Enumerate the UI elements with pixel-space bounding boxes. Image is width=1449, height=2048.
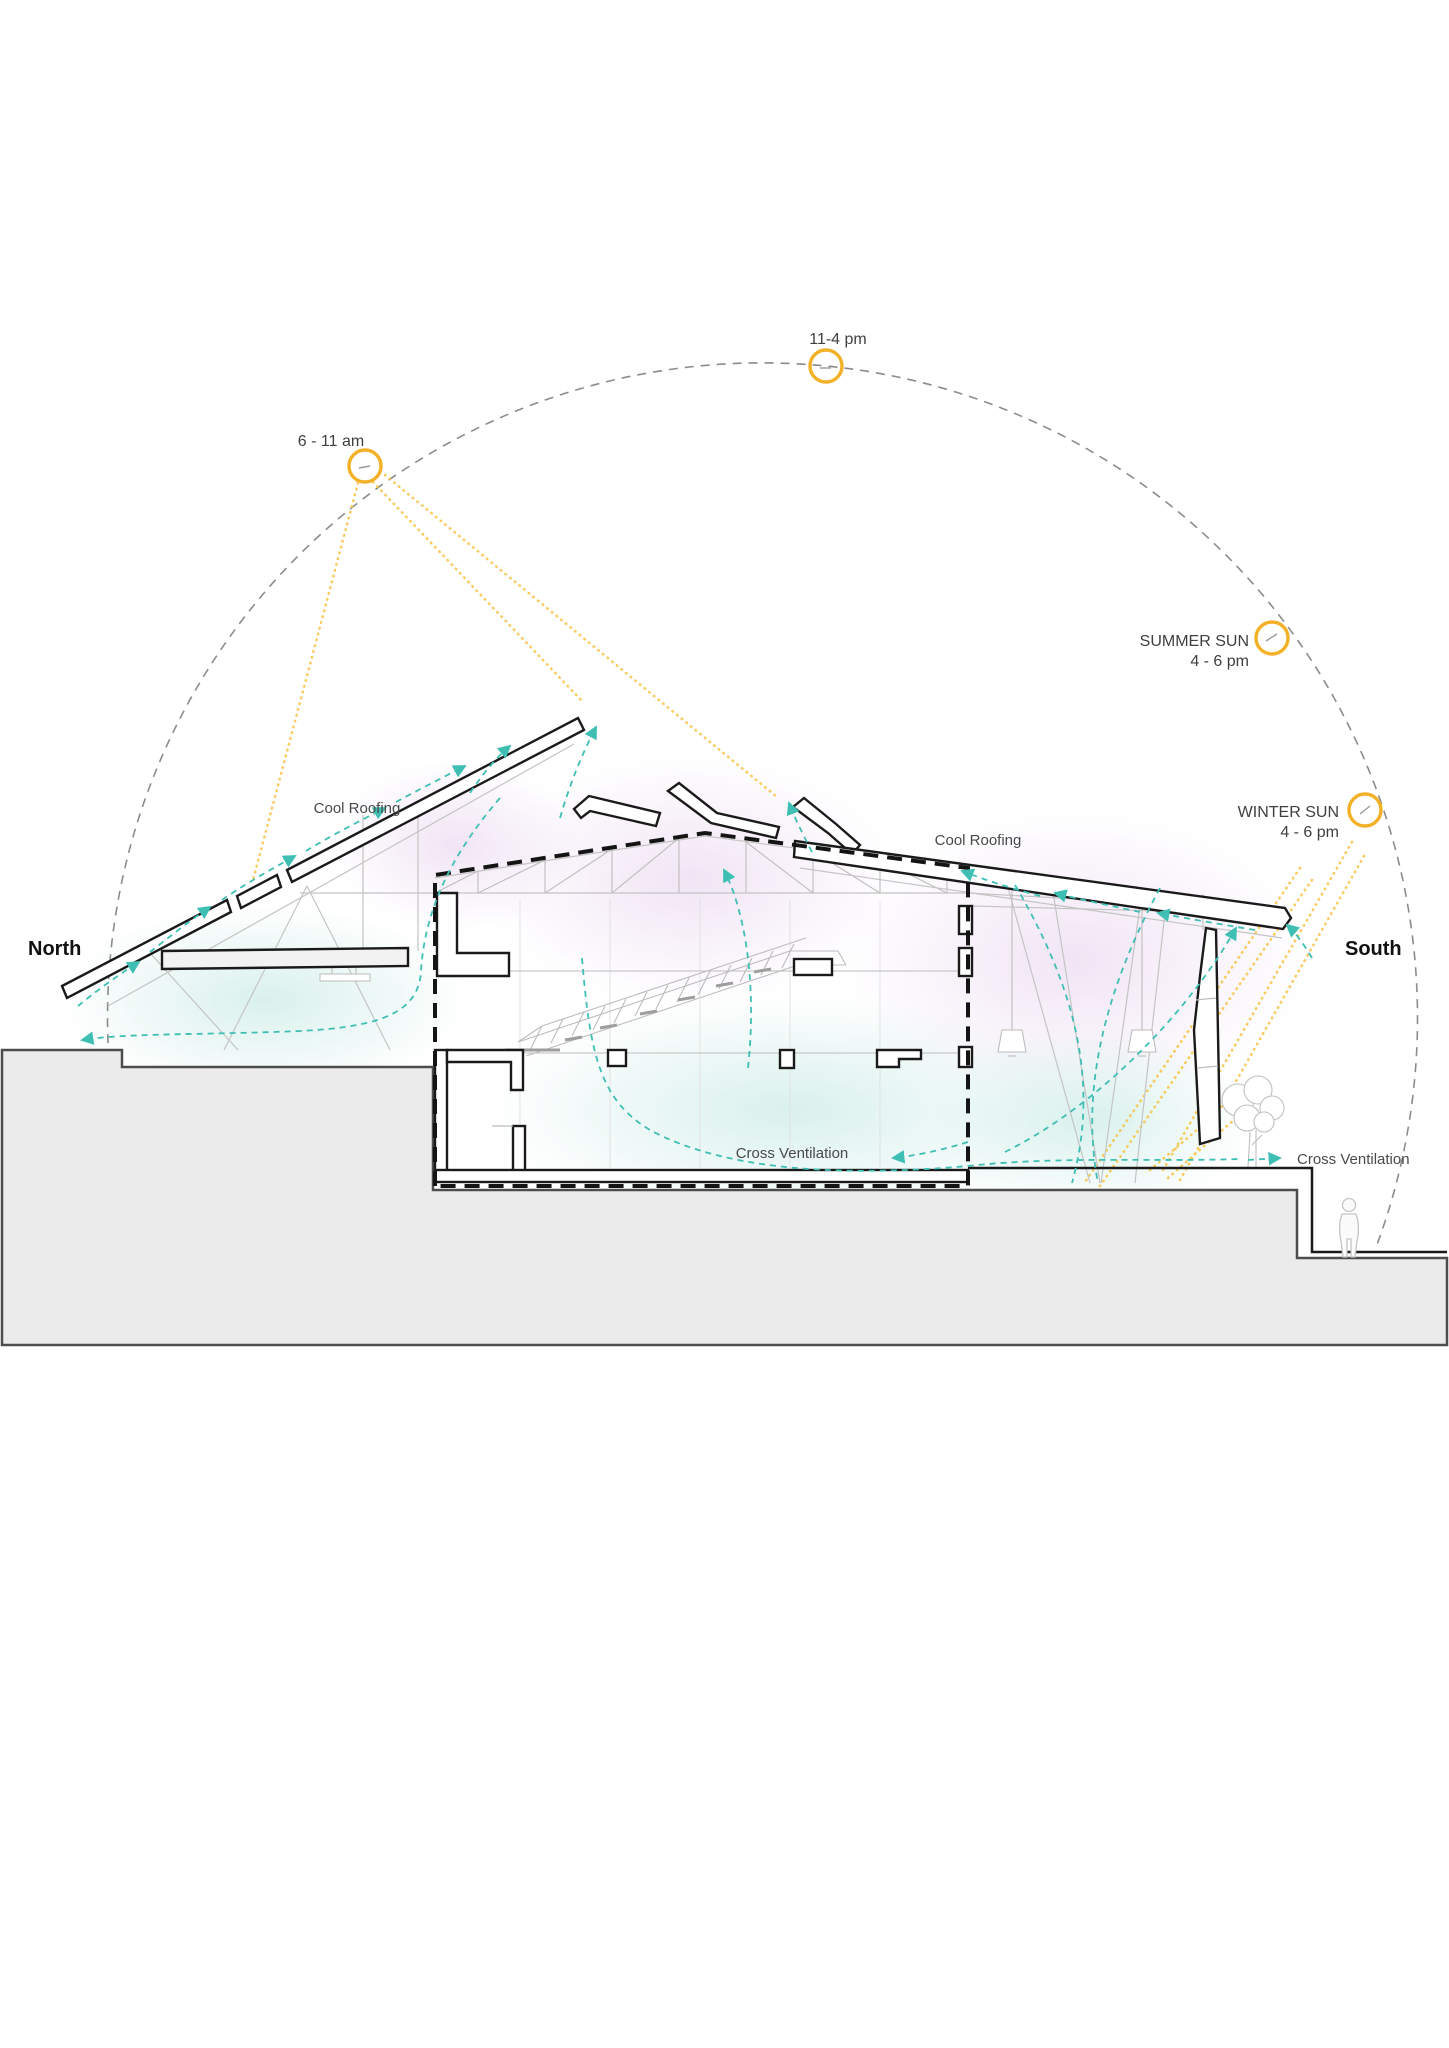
cross-ventilation-right-label: Cross Ventilation <box>1297 1151 1410 1168</box>
compass-south-label: South <box>1345 938 1402 960</box>
wall-stub <box>780 1050 794 1068</box>
right-wall-fragment <box>959 906 972 934</box>
person-figure <box>1340 1199 1359 1258</box>
sun-morning-label: 6 - 11 am <box>298 433 364 450</box>
lower-room-top-wall <box>447 1050 523 1090</box>
sun-midday-label: 11-4 pm <box>809 331 867 348</box>
summer-sun-time: 4 - 6 pm <box>1190 653 1249 670</box>
summer-sun-name: SUMMER SUN <box>1140 633 1249 650</box>
ground-floor-slab <box>435 1170 968 1182</box>
cool-roofing-right-label: Cool Roofing <box>935 832 1022 849</box>
winter-sun-name: WINTER SUN <box>1238 804 1339 821</box>
column-section <box>608 1050 626 1066</box>
lower-room-partition <box>513 1126 525 1172</box>
mezzanine-beam <box>794 959 832 975</box>
sun-center-ticks <box>359 368 1370 814</box>
winter-sun-time: 4 - 6 pm <box>1280 824 1339 841</box>
cross-ventilation-center-label: Cross Ventilation <box>736 1145 849 1162</box>
diagram-canvas: 11-4 pm 6 - 11 am SUMMER SUN 4 - 6 pm WI… <box>0 0 1449 2048</box>
sun-markers <box>349 350 1381 826</box>
right-wall-fragment <box>959 948 972 976</box>
compass-north-label: North <box>28 938 81 960</box>
morning-ray-clerestory-1 <box>373 482 583 702</box>
right-wall-fragment <box>959 1047 972 1067</box>
airflow-exit-right <box>1248 1158 1280 1160</box>
morning-ray-clerestory-2 <box>385 475 777 797</box>
sun-morning-icon <box>349 450 381 482</box>
pendant-light-bar <box>320 974 370 981</box>
architectural-section-diagram: 11-4 pm 6 - 11 am SUMMER SUN 4 - 6 pm WI… <box>0 0 1449 2048</box>
cool-roofing-left-label: Cool Roofing <box>314 800 401 817</box>
canopy-slab <box>162 948 408 969</box>
sun-midday-icon <box>810 350 842 382</box>
left-roof-plank-2 <box>237 875 281 908</box>
